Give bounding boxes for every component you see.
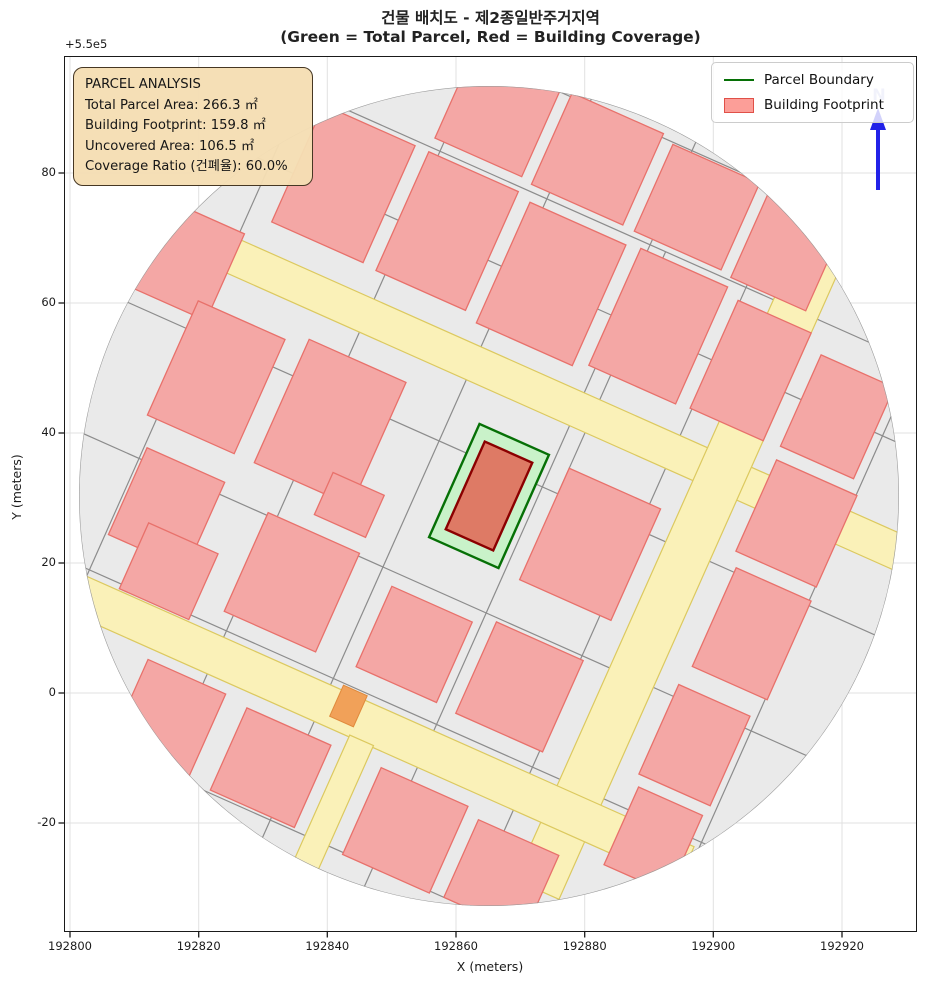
x-axis-label: X (meters) bbox=[390, 959, 590, 974]
x-tick-192820: 192820 bbox=[159, 939, 239, 953]
x-tick-192840: 192840 bbox=[287, 939, 367, 953]
y-tick-20: 20 bbox=[4, 555, 56, 569]
y-tick-neg20: -20 bbox=[4, 815, 56, 829]
legend-label: Building Footprint bbox=[764, 97, 884, 113]
parcel-analysis-title: PARCEL ANALYSIS bbox=[85, 75, 301, 96]
total-parcel-area: Total Parcel Area: 266.3 ㎡ bbox=[85, 96, 301, 117]
building-footprint-area: Building Footprint: 159.8 ㎡ bbox=[85, 116, 301, 137]
x-tick-192800: 192800 bbox=[30, 939, 110, 953]
y-tick-60: 60 bbox=[4, 295, 56, 309]
figure: N 건물 배치도 - 제2종일반주거지역 (Green = Total Parc… bbox=[0, 0, 931, 990]
x-tick-192900: 192900 bbox=[673, 939, 753, 953]
x-tick-192880: 192880 bbox=[545, 939, 625, 953]
parcel-analysis-box: PARCEL ANALYSIS Total Parcel Area: 266.3… bbox=[73, 67, 313, 186]
x-tick-192860: 192860 bbox=[416, 939, 496, 953]
plot-title: 건물 배치도 - 제2종일반주거지역 bbox=[64, 6, 917, 28]
y-axis-offset-label: +5.5e5 bbox=[65, 37, 107, 51]
legend-item-building-footprint: Building Footprint bbox=[724, 97, 901, 113]
coverage-ratio: Coverage Ratio (건폐율): 60.0% bbox=[85, 157, 301, 178]
green-line-swatch bbox=[724, 79, 754, 81]
y-axis-label: Y (meters) bbox=[9, 417, 25, 557]
legend-label: Parcel Boundary bbox=[764, 72, 874, 88]
legend-item-parcel-boundary: Parcel Boundary bbox=[724, 72, 901, 88]
uncovered-area: Uncovered Area: 106.5 ㎡ bbox=[85, 137, 301, 158]
red-patch-swatch bbox=[724, 98, 754, 113]
plot-subtitle: (Green = Total Parcel, Red = Building Co… bbox=[64, 28, 917, 46]
y-tick-80: 80 bbox=[4, 165, 56, 179]
legend: Parcel Boundary Building Footprint bbox=[711, 62, 914, 123]
y-tick-0: 0 bbox=[4, 685, 56, 699]
x-tick-192920: 192920 bbox=[802, 939, 882, 953]
